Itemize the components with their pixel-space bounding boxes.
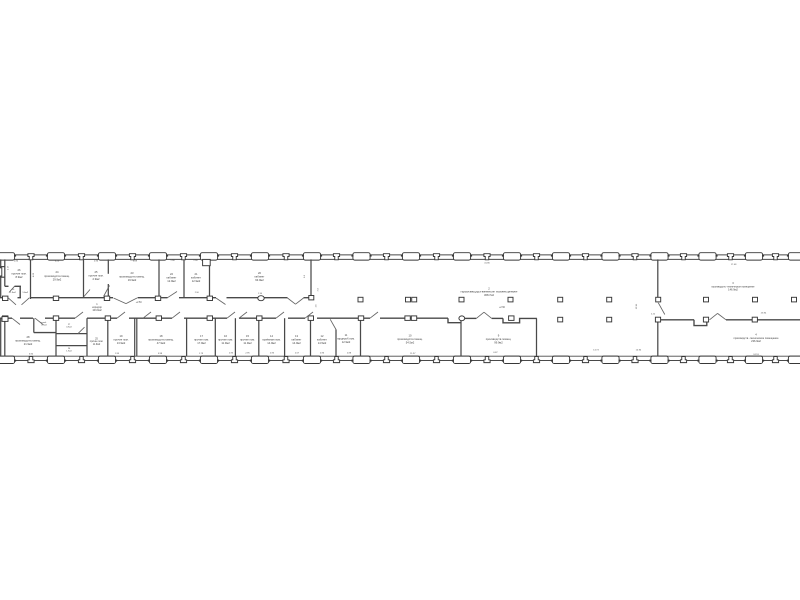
svg-text:14.5м2: 14.5м2	[318, 341, 327, 345]
svg-text:12.9м2: 12.9м2	[167, 279, 176, 283]
svg-text:93.9м2: 93.9м2	[255, 278, 264, 282]
svg-text:+2.50: +2.50	[499, 307, 506, 309]
svg-text:кабинет: кабинет	[292, 337, 303, 341]
svg-text:производств.помещ.: производств.помещ.	[15, 339, 41, 342]
svg-text:приёмная пом.: приёмная пом.	[262, 337, 281, 341]
svg-text:1.6м2: 1.6м2	[22, 292, 29, 294]
svg-text:+2.50: +2.50	[136, 302, 143, 304]
svg-text:производств.помещ.: производств.помещ.	[119, 275, 145, 278]
svg-text:99.9м2: 99.9м2	[494, 341, 503, 345]
svg-text:14: 14	[270, 334, 273, 338]
svg-text:21.9м2: 21.9м2	[24, 342, 33, 346]
svg-text:26: 26	[18, 268, 21, 272]
svg-text:11.9м2: 11.9м2	[221, 341, 230, 345]
svg-text:прочие пом.: прочие пом.	[11, 272, 26, 275]
svg-text:17.08: 17.08	[731, 264, 737, 266]
svg-text:23.94: 23.94	[761, 312, 767, 314]
svg-text:производств.помещ.: производств.помещ.	[486, 338, 512, 341]
svg-text:1.9м2: 1.9м2	[10, 292, 17, 294]
svg-text:11.9м2: 11.9м2	[243, 341, 252, 345]
svg-text:24: 24	[56, 270, 59, 274]
svg-text:28: 28	[27, 335, 30, 339]
svg-text:17: 17	[200, 334, 203, 338]
svg-text:29.9м2: 29.9м2	[53, 277, 62, 281]
svg-text:14.94: 14.94	[636, 350, 642, 352]
svg-text:14.9м2: 14.9м2	[292, 341, 301, 345]
svg-text:прочие пом.: прочие пом.	[113, 338, 128, 341]
svg-text:12: 12	[321, 334, 324, 338]
svg-text:15: 15	[246, 334, 249, 338]
svg-text:0.9м2: 0.9м2	[66, 327, 72, 329]
svg-text:25: 25	[95, 270, 98, 274]
svg-text:20: 20	[258, 271, 261, 275]
svg-text:кабинет: кабинет	[255, 274, 266, 278]
svg-text:368.7м2: 368.7м2	[484, 293, 495, 297]
svg-text:10: 10	[409, 333, 412, 337]
svg-text:14.9м2: 14.9м2	[267, 341, 276, 345]
svg-text:24.53: 24.53	[753, 354, 759, 356]
svg-text:41.86: 41.86	[484, 262, 490, 264]
svg-text:прочие пом.: прочие пом.	[240, 338, 255, 341]
svg-text:13.91: 13.91	[636, 303, 638, 309]
svg-text:23: 23	[131, 271, 134, 275]
svg-text:11: 11	[345, 333, 348, 337]
svg-text:2.9м2: 2.9м2	[92, 277, 100, 281]
svg-text:146.9м2: 146.9м2	[728, 288, 738, 292]
svg-text:12.9м2: 12.9м2	[342, 340, 351, 344]
svg-text:16: 16	[224, 334, 227, 338]
svg-text:236.9м2: 236.9м2	[751, 339, 761, 343]
svg-text:21: 21	[195, 272, 198, 276]
svg-text:17.9м2: 17.9м2	[197, 341, 206, 345]
svg-text:производств.помещ.: производств.помещ.	[148, 338, 174, 341]
svg-text:11.97: 11.97	[410, 353, 416, 355]
svg-text:кабинет: кабинет	[317, 337, 328, 341]
svg-text:1.9м2: 1.9м2	[66, 350, 72, 352]
svg-text:103.9м2: 103.9м2	[92, 309, 102, 312]
svg-text:13.9м2: 13.9м2	[117, 341, 126, 345]
svg-text:54.5м2: 54.5м2	[406, 341, 415, 345]
svg-text:19: 19	[120, 334, 123, 338]
svg-text:производств.помещ.: производств.помещ.	[44, 275, 70, 278]
svg-text:прочие пом.: прочие пом.	[218, 338, 233, 341]
svg-text:47.9м2: 47.9м2	[157, 341, 166, 345]
svg-text:13: 13	[295, 334, 298, 338]
svg-text:8.9м2: 8.9м2	[15, 275, 23, 279]
svg-text:13.73: 13.73	[593, 350, 599, 352]
svg-text:кабинет: кабинет	[167, 275, 178, 279]
svg-text:кабинет: кабинет	[191, 275, 202, 279]
svg-text:производств.помещ.: производств.помещ.	[397, 338, 423, 341]
svg-text:гардероб.пом.: гардероб.пом.	[337, 336, 355, 340]
svg-text:19.9м2: 19.9м2	[128, 278, 137, 282]
svg-text:12.9м2: 12.9м2	[192, 279, 201, 283]
svg-text:прочие пом.: прочие пом.	[194, 338, 209, 341]
svg-text:18: 18	[160, 334, 163, 338]
svg-text:22: 22	[170, 272, 173, 276]
svg-text:прочие пом.: прочие пом.	[88, 274, 103, 277]
svg-text:11.9м2: 11.9м2	[93, 343, 101, 346]
svg-text:0.9м2: 0.9м2	[41, 324, 47, 326]
